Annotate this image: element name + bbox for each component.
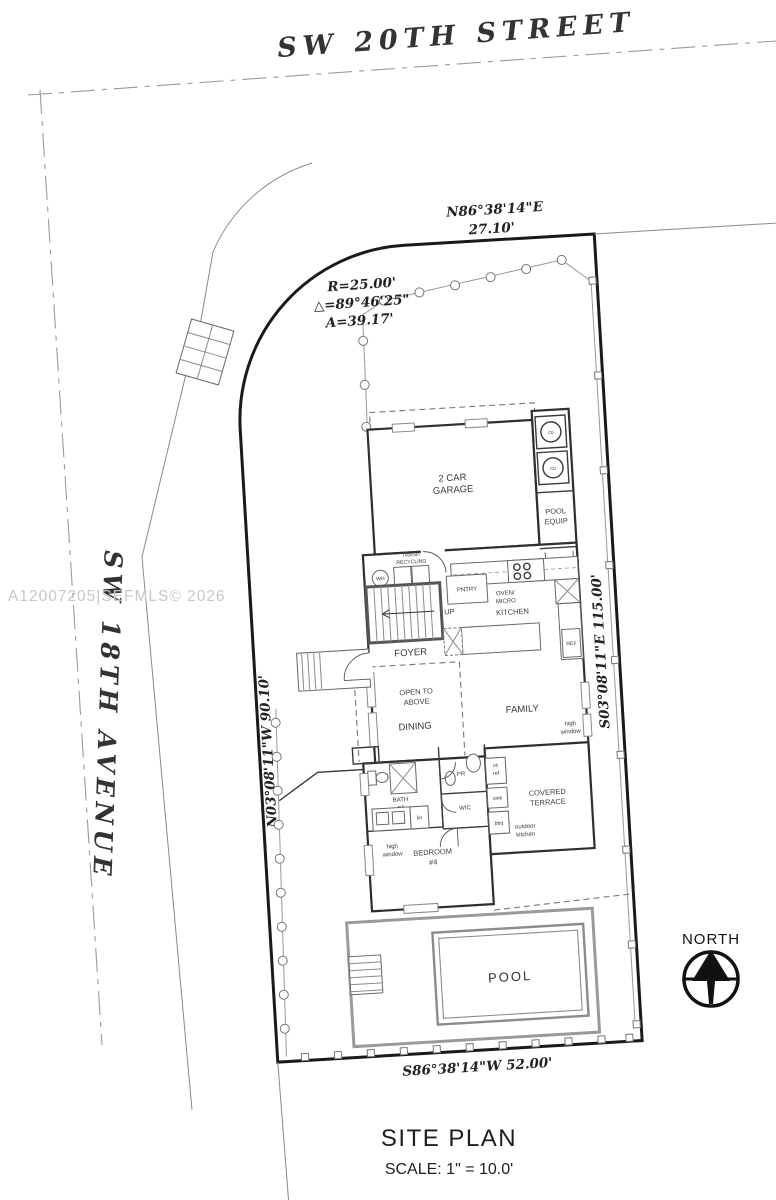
dining-label: DINING [398,720,432,733]
fence-post [301,1053,308,1060]
fence-post [450,281,460,291]
bbq-label: bbq [495,820,504,827]
boundary-extension-ne [594,223,776,234]
fence-post [277,922,287,932]
street-centerline-sw18 [40,90,102,1045]
overhang-dashed-se [494,894,632,910]
mls-watermark: A12007205|SEFMLS© 2026 [8,588,226,605]
wic-label: WIC [459,805,472,812]
fence-post [334,1051,341,1058]
curve-arc-label: A=39.17' [323,311,394,332]
family-window [583,714,592,736]
pr-sink [466,754,481,773]
high-window-label-1: high [564,721,576,728]
fence-post [633,1021,640,1028]
fence-post [415,288,425,298]
recycle-bin [412,565,430,584]
north-label: NORTH [682,931,740,948]
open-above-label-2: ABOVE [403,697,429,708]
fence-post [273,786,283,796]
compass-arrow-stem [707,981,715,1004]
fence-post [623,846,630,853]
fence-post [433,1046,440,1053]
dim-south-bearing: S86°38'14"W 52.00' [402,1055,553,1080]
sink-label: sink [493,795,503,802]
north-arrow: NORTH [682,931,740,1006]
fence-post [271,718,281,728]
title-block: SITE PLAN SCALE: 1" = 10.0' [381,1125,517,1178]
wh-label: WH [376,576,385,583]
family-window [581,682,591,708]
trash-bin [394,566,412,585]
pantry-label: PNTRY [457,587,478,594]
fence-post [617,751,624,758]
high-window-label-2: window [560,729,582,736]
site-plan-page: SW 20TH STREET SW 18TH AVENUE A12007205|… [0,0,776,1200]
deck-steps [349,955,383,995]
fence-post [279,990,289,1000]
high-window-label-2b: window [382,851,404,858]
curb-line-sw18 [142,374,192,1110]
catch-basin [176,319,234,385]
vanity-sink [392,811,405,824]
fence-post [628,941,635,948]
boundary-extension-sw [278,1062,291,1200]
fence-post [611,656,618,663]
toilet-tank [368,771,377,785]
fence-post [600,467,607,474]
trash-label-1: TRASH [402,552,420,559]
fence-post [280,1024,290,1034]
fence-post [275,854,285,864]
entry-porch [297,649,374,691]
fence-post [272,752,282,762]
sheet-title: SITE PLAN [381,1125,517,1152]
fence-post [400,1047,407,1054]
outdoor-kitchen-label-1: outdoor [515,823,536,830]
sheet-scale: SCALE: 1" = 10.0' [385,1161,513,1178]
curve-data: R=25.00' △=89°46'25" A=39.17' [313,275,410,332]
dim-north-distance: 27.10' [467,220,515,239]
vanity-sink [376,812,389,825]
fence-post [521,264,531,274]
dim-north-bearing: N86°38'14"E [445,199,544,221]
garage-window [465,419,487,428]
fence-post [532,1040,539,1047]
high-window-label-1b: high [386,844,398,851]
pool-equip-label-1: POOL [545,506,566,516]
fence-post [589,277,596,284]
pr-label: PR [457,772,466,779]
up-label: UP [444,607,455,617]
fence-post [606,561,613,568]
bedroom-window [364,845,374,875]
fence-post [594,372,601,379]
uc-label: uc [493,763,499,769]
fence-post [360,380,370,390]
fence-post [499,1042,506,1049]
fence-post [565,1038,572,1045]
cu-label: cu [550,466,556,472]
curb-corner-arc [196,163,312,348]
fence-post [278,956,288,966]
pool-equip-label-2: EQUIP [544,516,568,526]
ucref-label: ref [493,771,500,777]
plan-group: N86°38'14"E 27.10' S03°08'11"E 115.00' N… [228,185,776,1200]
fence-post [626,1034,633,1041]
fence-post [486,272,496,282]
fence-post [466,1044,473,1051]
overhang-dashed-garage [369,403,534,423]
fence-post [557,255,567,265]
pool-label: POOL [488,968,533,986]
fence-post [276,888,286,898]
bath-label-1: BATH [393,797,409,804]
linen-label: lin [417,815,423,821]
fence-post [358,336,368,346]
bath-window [360,773,369,795]
foyer-label: FOYER [394,647,427,660]
pool-area: POOL [346,894,640,1047]
dining-window [368,713,378,747]
house: 2 CAR GARAGE cu cu POOL EQUIP TRASH RECY… [257,401,602,921]
fence-post [598,1036,605,1043]
fence-post [367,1049,374,1056]
toilet-bowl [376,772,389,783]
bedroom-window [404,903,438,913]
outdoor-kitchen-label-2: kitchen [516,832,535,839]
steps-outline [349,955,383,995]
bedroom-label-2: #4 [429,857,438,866]
family-label: FAMILY [505,703,539,716]
oven-label-1: OVEN/ [496,590,515,597]
garden-wall [278,770,365,801]
garage-window [392,423,414,432]
garage-label-1: 2 CAR [438,472,467,485]
ref-label: REF [566,641,577,648]
site-plan-drawing: SW 20TH STREET SW 18TH AVENUE A12007205|… [0,0,776,1200]
oven-label-2: MICRO [496,598,517,605]
pr-toilet [445,771,456,786]
fence-post [274,820,284,830]
street-name-sw20: SW 20TH STREET [276,7,636,64]
cu-label: cu [548,430,554,436]
kitchen-island [461,623,540,655]
